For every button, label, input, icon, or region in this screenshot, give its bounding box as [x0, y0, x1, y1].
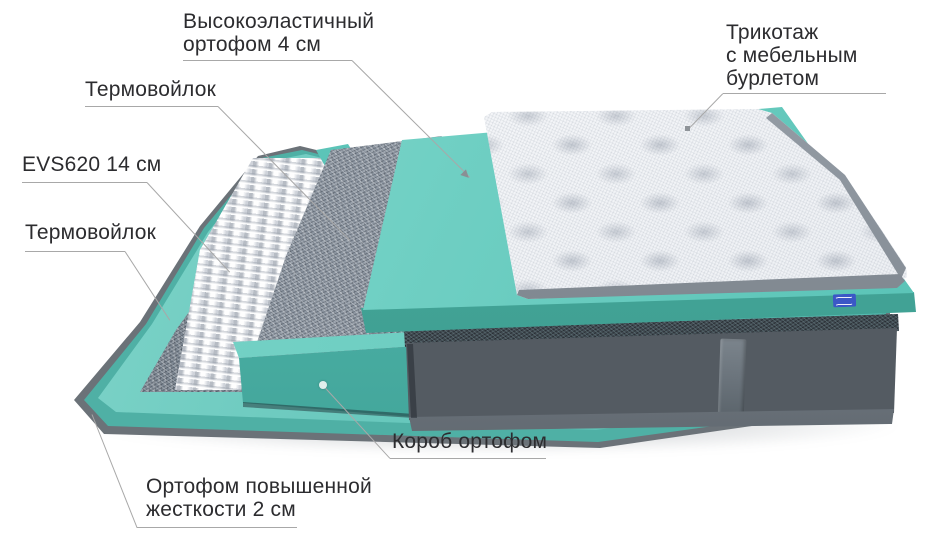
label-highelastic-orthofoam: Высокоэластичный ортофом 4 см — [183, 10, 374, 56]
leader-underline-box — [390, 458, 546, 459]
leader-square-icon — [685, 126, 690, 131]
leader-underline-springs — [22, 182, 147, 183]
label-line: жесткости 2 см — [146, 498, 372, 521]
brand-tag — [833, 294, 856, 308]
label-line: Термовойлок — [85, 78, 216, 101]
label-thermofelt-upper: Термовойлок — [85, 78, 216, 101]
label-line: Ортофом повышенной — [146, 475, 372, 498]
label-thermofelt-lower: Термовойлок — [25, 221, 156, 244]
label-line: EVS620 14 см — [22, 153, 161, 176]
leader-underline-knit — [723, 93, 886, 94]
label-base-orthofoam: Ортофом повышенной жесткости 2 см — [146, 475, 372, 521]
leader-underline-base — [137, 527, 297, 528]
label-line: Короб ортофом — [392, 430, 547, 453]
label-line: бурлетом — [726, 67, 858, 90]
mattress-handle-strap — [718, 339, 747, 423]
leader-dot-icon — [319, 381, 327, 389]
label-line: ортофом 4 см — [183, 33, 374, 56]
label-knit-cover: Трикотаж с мебельным бурлетом — [726, 21, 858, 90]
label-springs-evs620: EVS620 14 см — [22, 153, 161, 176]
mattress-diagram: Высокоэластичный ортофом 4 см Термовойло… — [0, 0, 932, 541]
leader-underline-thermofelt-lower — [25, 251, 125, 252]
label-line: Высокоэластичный — [183, 10, 374, 33]
label-line: Термовойлок — [25, 221, 156, 244]
label-orthofoam-box: Короб ортофом — [392, 430, 547, 453]
label-line: с мебельным — [726, 44, 858, 67]
leader-underline-highelastic — [183, 60, 352, 61]
label-line: Трикотаж — [726, 21, 858, 44]
leader-underline-thermofelt-upper — [85, 106, 218, 107]
